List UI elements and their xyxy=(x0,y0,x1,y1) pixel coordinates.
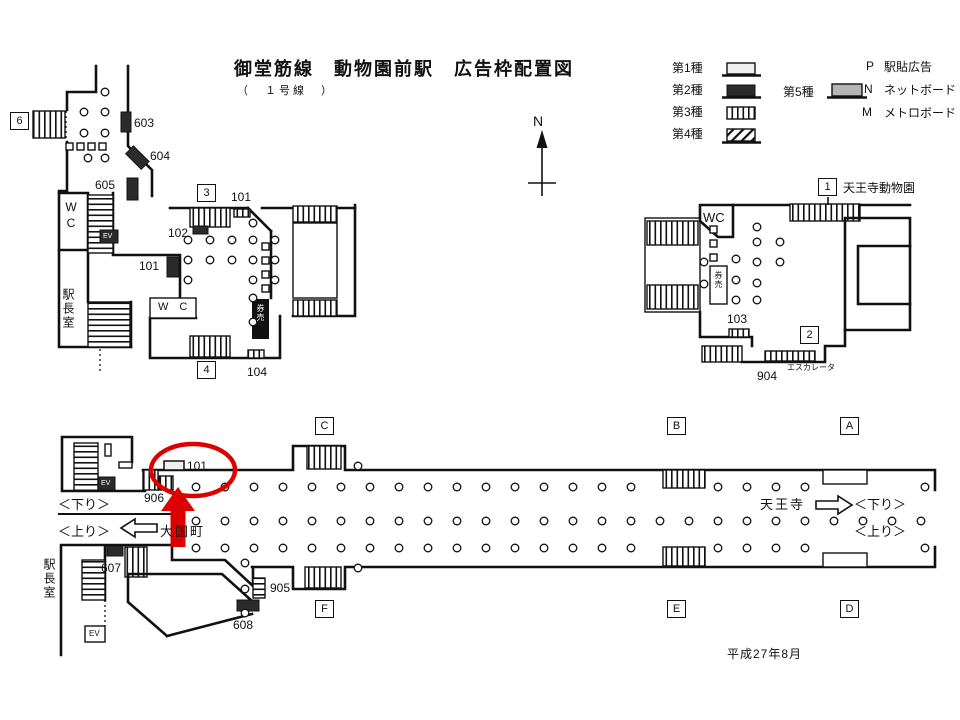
platform-columns-row-lower xyxy=(192,544,635,552)
stairs xyxy=(647,221,698,245)
ev-label-upper-left: EV xyxy=(103,233,112,240)
stairs-exit-b xyxy=(663,470,705,488)
station-ad-layout-map: 御堂筋線 動物園前駅 広告枠配置図 （ １号線 ） N 第1種 第2種 第3種 … xyxy=(0,0,960,720)
exit6-stairs xyxy=(33,111,65,138)
legend-m-key: M xyxy=(862,106,872,118)
stairs xyxy=(88,195,113,253)
ad-frame-604 xyxy=(126,146,149,169)
down-line-label-right: ＜下り＞ xyxy=(854,498,906,511)
ad-label-102: 102 xyxy=(168,227,188,239)
stairs xyxy=(190,208,230,227)
type5-symbol xyxy=(832,84,862,96)
stairs xyxy=(190,336,230,357)
type1-symbol xyxy=(727,63,755,74)
ev-label-platform-lower: EV xyxy=(89,630,100,638)
platform-marker-a: A xyxy=(840,417,859,435)
legend-p-key: P xyxy=(866,60,874,72)
ticket-gates xyxy=(710,226,717,261)
stairs xyxy=(293,206,337,222)
platform-columns-row-middle xyxy=(192,517,925,525)
ad-frame-608 xyxy=(237,600,259,611)
office-label-left: 駅長室 xyxy=(62,288,74,330)
platform-marker-f: F xyxy=(315,600,334,618)
exit-marker-3: 3 xyxy=(197,184,216,202)
ad-frame-101-platform xyxy=(164,461,184,470)
wc-label-mid: W C xyxy=(158,302,187,313)
legend-n-key: N xyxy=(864,83,873,95)
exit-marker-1: 1 xyxy=(818,178,837,196)
platform-marker-b: B xyxy=(667,417,686,435)
next-station-tennoji: 天王寺 xyxy=(760,498,805,511)
legend-type4-label: 第4種 xyxy=(672,128,703,140)
ticket-label-right: 券売 xyxy=(714,271,722,289)
next-station-daikokucho: 大国町 xyxy=(160,525,205,538)
north-arrow-icon xyxy=(528,130,556,196)
ad-label-607: 607 xyxy=(101,562,121,574)
date-label: 平成27年8月 xyxy=(727,648,802,660)
ad-label-103: 103 xyxy=(727,313,747,325)
ad-frame-103 xyxy=(729,329,749,337)
legend-p-label: 駅貼広告 xyxy=(884,61,932,73)
ad-label-904: 904 xyxy=(757,370,777,382)
ad-frame-605 xyxy=(127,178,138,200)
legend-symbols xyxy=(722,63,867,143)
page-subtitle: （ １号線 ） xyxy=(237,86,335,97)
wc-label-right: WC xyxy=(703,211,725,224)
platform-columns-row-lower-right xyxy=(714,544,809,552)
up-line-label-left: ＜上り＞ xyxy=(58,525,110,538)
stairs xyxy=(702,346,742,362)
alcove xyxy=(823,553,867,567)
type3-symbol xyxy=(727,107,755,119)
ad-frame-104 xyxy=(248,350,264,358)
legend-type2-label: 第2種 xyxy=(672,84,703,96)
destination-label: 天王寺動物園 xyxy=(843,182,915,194)
ad-frame-905 xyxy=(253,578,265,598)
room xyxy=(293,223,337,298)
ad-label-905: 905 xyxy=(270,582,290,594)
platform-columns-row-upper xyxy=(192,483,635,491)
escalator-label: エスカレータ xyxy=(787,364,835,372)
legend-type5-label: 第5種 xyxy=(783,86,814,98)
ad-label-104: 104 xyxy=(247,366,267,378)
stairs xyxy=(125,547,147,577)
legend-n-label: ネットボード xyxy=(884,84,956,96)
ad-frame-101-top xyxy=(234,209,250,217)
ev-label-platform-upper: EV xyxy=(101,480,110,487)
stairs-exit-c xyxy=(307,446,341,469)
legend-m-label: メトロボード xyxy=(884,107,956,119)
stairs xyxy=(88,302,130,347)
stairs-exit-e xyxy=(663,547,705,566)
ad-label-906: 906 xyxy=(144,492,164,504)
ticket-label-left: 券売 xyxy=(256,304,264,322)
ad-label-603: 603 xyxy=(134,117,154,129)
wc-label-upper: WC xyxy=(65,200,77,232)
stairs xyxy=(647,285,698,309)
platform-columns-row-upper-right xyxy=(714,483,809,491)
ad-frame-102 xyxy=(193,226,208,234)
platform-marker-c: C xyxy=(315,417,334,435)
alcove xyxy=(823,470,867,484)
direction-arrow-right-icon xyxy=(816,496,852,514)
ad-label-101-platform: 101 xyxy=(187,460,207,472)
type4-symbol xyxy=(727,129,755,141)
concourse-right-walls xyxy=(645,197,910,362)
ad-frame-101-mid xyxy=(167,257,179,277)
exit-marker-6: 6 xyxy=(10,112,29,130)
ad-label-101-mid: 101 xyxy=(139,260,159,272)
ad-frame-607 xyxy=(107,546,123,556)
legend-type1-label: 第1種 xyxy=(672,62,703,74)
type2-symbol xyxy=(727,85,755,96)
exit-marker-4: 4 xyxy=(197,361,216,379)
down-line-label-left: ＜下り＞ xyxy=(58,498,110,511)
stairs xyxy=(74,443,98,491)
office-label-platform: 駅長室 xyxy=(43,558,55,600)
platform-marker-e: E xyxy=(667,600,686,618)
exit-marker-2: 2 xyxy=(800,326,819,344)
platform-marker-d: D xyxy=(840,600,859,618)
direction-arrow-left-icon xyxy=(121,519,157,537)
up-line-label-right: ＜上り＞ xyxy=(854,525,906,538)
legend-type3-label: 第3種 xyxy=(672,106,703,118)
ad-label-605: 605 xyxy=(95,179,115,191)
ad-label-604: 604 xyxy=(150,150,170,162)
north-label: N xyxy=(533,114,543,128)
page-title: 御堂筋線 動物園前駅 広告枠配置図 xyxy=(234,60,574,78)
stairs-exit-f xyxy=(305,567,341,588)
ad-label-101-top: 101 xyxy=(231,191,251,203)
floor-plan-drawing xyxy=(0,0,960,720)
ad-label-608: 608 xyxy=(233,619,253,631)
stairs xyxy=(293,300,337,316)
escalator-stairs xyxy=(765,351,815,361)
ad-frame-603 xyxy=(121,112,131,132)
